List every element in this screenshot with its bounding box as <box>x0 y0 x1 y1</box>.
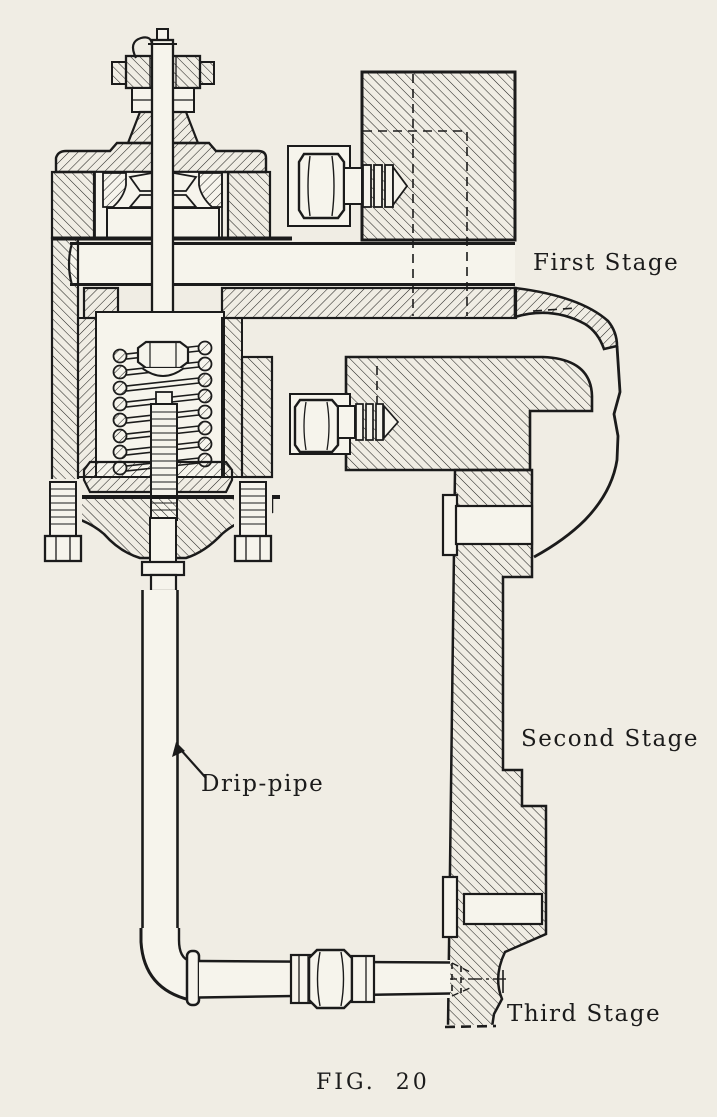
figure-caption: FIG. 20 <box>316 1070 430 1095</box>
drip-pipe <box>141 590 450 1008</box>
second-stage-label: Second Stage <box>521 726 699 752</box>
body-wall-left <box>52 172 94 238</box>
valve-stem <box>148 29 177 350</box>
book-plate-page: First Stage Second Stage Third Stage Dri… <box>0 0 717 1117</box>
outer-wall-right <box>242 357 272 477</box>
stem-guide <box>150 518 176 562</box>
drip-pipe-label: Drip-pipe <box>201 771 324 797</box>
bottom-flange <box>44 479 280 591</box>
bolt-nut <box>45 536 81 561</box>
body-wall-right <box>228 172 270 238</box>
figure-20-drawing: First Stage Second Stage Third Stage Dri… <box>0 0 717 1117</box>
inner-wall-left <box>78 318 96 477</box>
pipe-band-bore <box>70 242 515 286</box>
first-stage-label: First Stage <box>533 250 679 276</box>
outer-wall-left <box>52 238 78 497</box>
flange-bolt-right <box>234 479 272 563</box>
bolt-head <box>299 154 344 218</box>
gland-ear-left <box>112 62 126 84</box>
pipe-union-nut <box>291 950 374 1008</box>
bolt-head <box>295 400 338 452</box>
second-stage-casing <box>290 357 592 1027</box>
flange-bolt-left <box>44 479 82 563</box>
outlet-fitting <box>142 562 184 575</box>
third-stage-label: Third Stage <box>507 1001 661 1027</box>
outlet-stub <box>151 575 176 591</box>
gland-ear-right <box>200 62 214 84</box>
bolt-nut <box>235 536 271 561</box>
right-ledge <box>222 288 516 318</box>
first-stage-pipe-band <box>69 242 515 286</box>
elbow-flange-collar <box>187 951 199 1005</box>
inner-wall-right <box>222 318 242 477</box>
drip-pipe-vertical <box>141 590 179 930</box>
spring-top-nut <box>138 342 188 376</box>
